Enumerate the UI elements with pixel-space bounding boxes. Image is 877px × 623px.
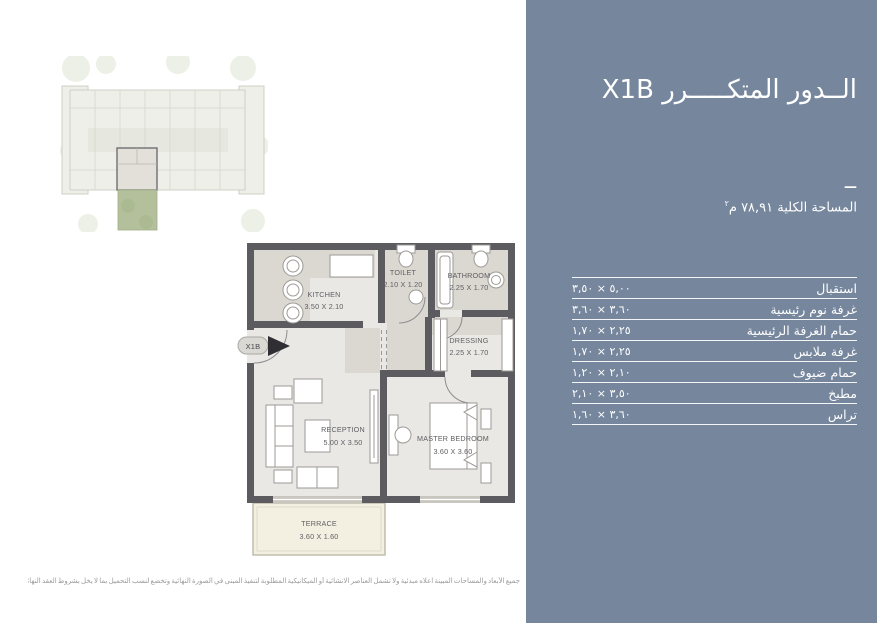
reception-dims: 5.00 X 3.50 xyxy=(324,438,363,447)
table-row: ٥,٠٠ × ٣,٥٠ استقبال xyxy=(572,277,857,298)
room-label: حمام ضيوف xyxy=(793,365,857,380)
dressing-label: DRESSING xyxy=(449,336,488,345)
room-dims: ٣,٦٠ × ٣,٦٠ xyxy=(572,303,631,316)
room-label: غرفة نوم رئيسية xyxy=(770,302,857,317)
info-panel: الــدور المتكـــــرر X1B — المساحة الكلي… xyxy=(526,0,877,623)
divider-dash: — xyxy=(844,180,857,195)
total-area-text: المساحة الكلية ٧٨,٩١ م xyxy=(729,200,857,215)
key-plan-drawing xyxy=(58,56,268,232)
key-plan-highlighted-unit xyxy=(117,148,157,190)
room-dims: ٣,٦٠ × ١,٦٠ xyxy=(572,408,631,421)
bathroom-dims: 2.25 X 1.70 xyxy=(450,283,489,292)
room-label: استقبال xyxy=(816,281,857,296)
key-plan-building xyxy=(62,86,264,194)
unit-marker-text: X1B xyxy=(246,342,261,351)
reception-label: RECEPTION xyxy=(321,425,365,434)
toilet-label: TOILET xyxy=(390,268,417,277)
terrace-dims: 3.60 X 1.60 xyxy=(300,532,339,541)
room-dims: ٢,٢٥ × ١,٧٠ xyxy=(572,324,631,337)
room-label: غرفة ملابس xyxy=(793,344,857,359)
key-plan-unit-terrace xyxy=(118,190,157,230)
page-title: الــدور المتكـــــرر X1B xyxy=(542,74,857,107)
room-label: تراس xyxy=(828,407,857,422)
room-label: حمام الغرفة الرئيسية xyxy=(747,323,857,338)
room-dims: ٥,٠٠ × ٣,٥٠ xyxy=(572,282,631,295)
floor-plan-drawing: KITCHEN 3.50 X 2.10 TOILET 2.10 X 1.20 B… xyxy=(235,233,525,565)
room-dimensions-table: ٥,٠٠ × ٣,٥٠ استقبال ٣,٦٠ × ٣,٦٠ غرفة نوم… xyxy=(572,277,857,425)
table-row: ٢,١٠ × ١,٢٠ حمام ضيوف xyxy=(572,361,857,382)
toilet-dims: 2.10 X 1.20 xyxy=(384,280,423,289)
key-plan xyxy=(58,56,268,232)
table-row: ٣,٦٠ × ١,٦٠ تراس xyxy=(572,403,857,425)
table-row: ٢,٢٥ × ١,٧٠ حمام الغرفة الرئيسية xyxy=(572,319,857,340)
table-row: ٢,٢٥ × ١,٧٠ غرفة ملابس xyxy=(572,340,857,361)
room-dims: ٣,٥٠ × ٢,١٠ xyxy=(572,387,631,400)
total-area: المساحة الكلية ٧٨,٩١ م٢ xyxy=(546,199,857,215)
room-dims: ٢,١٠ × ١,٢٠ xyxy=(572,366,631,379)
bathroom-label: BATHROOM xyxy=(448,271,491,280)
table-row: ٣,٥٠ × ٢,١٠ مطبخ xyxy=(572,382,857,403)
room-dims: ٢,٢٥ × ١,٧٠ xyxy=(572,345,631,358)
master-bedroom-dims: 3.60 X 3.60 xyxy=(434,447,473,456)
disclaimer-text: جميع الأبعاد والمساحات المبينة اعلاه مبد… xyxy=(28,577,520,591)
terrace-label: TERRACE xyxy=(301,519,337,528)
unit-floor-plan: KITCHEN 3.50 X 2.10 TOILET 2.10 X 1.20 B… xyxy=(235,233,525,565)
master-bedroom-label: MASTER BEDROOM xyxy=(417,434,489,443)
table-row: ٣,٦٠ × ٣,٦٠ غرفة نوم رئيسية xyxy=(572,298,857,319)
room-label: مطبخ xyxy=(828,386,857,401)
dressing-dims: 2.25 X 1.70 xyxy=(450,348,489,357)
kitchen-dims: 3.50 X 2.10 xyxy=(305,302,344,311)
kitchen-label: KITCHEN xyxy=(308,290,341,299)
